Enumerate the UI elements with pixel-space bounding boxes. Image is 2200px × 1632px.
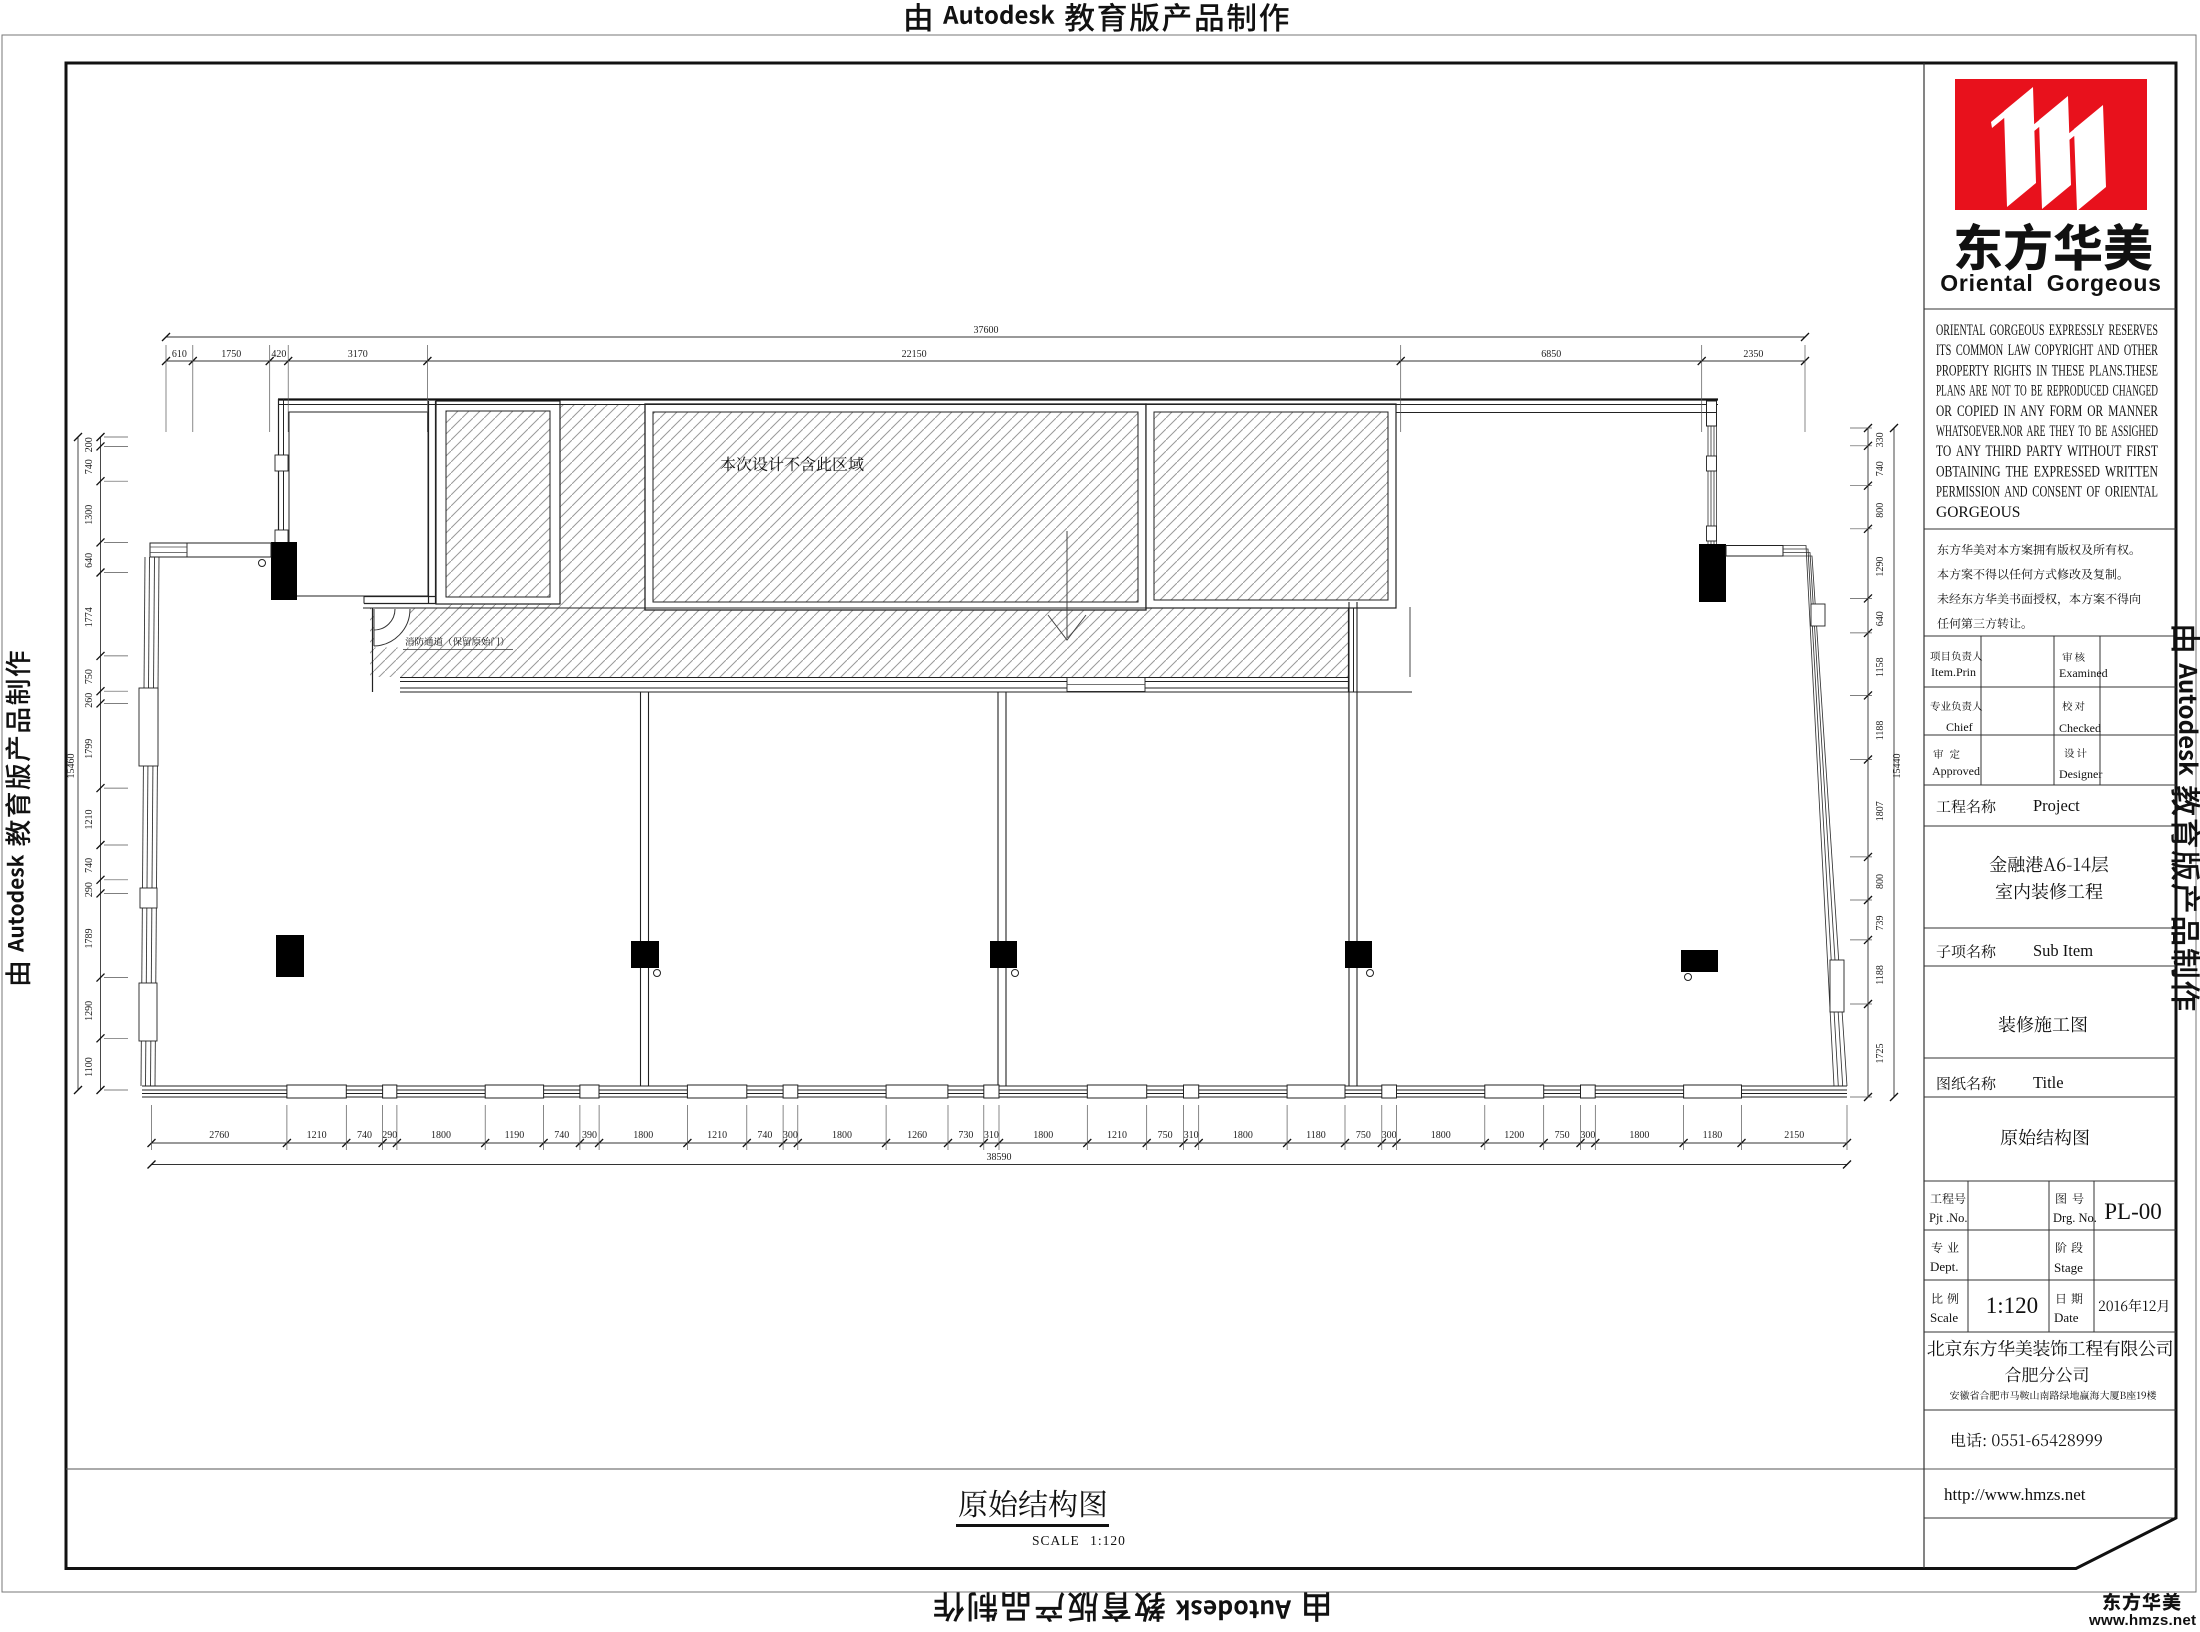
svg-text:Drg. No.: Drg. No. [2053,1211,2097,1225]
svg-text:2150: 2150 [1784,1130,1804,1141]
svg-text:800: 800 [1875,503,1886,518]
svg-text:6850: 6850 [1541,349,1561,360]
svg-text:1210: 1210 [707,1130,727,1141]
svg-text:GORGEOUS: GORGEOUS [1936,504,2020,521]
svg-text:http://www.hmzs.net: http://www.hmzs.net [1944,1485,2086,1504]
svg-text:Examined: Examined [2059,666,2108,680]
svg-text:1800: 1800 [1629,1130,1649,1141]
svg-text:310: 310 [1184,1130,1199,1141]
svg-text:38590: 38590 [987,1152,1012,1163]
svg-text:Pjt .No.: Pjt .No. [1929,1211,1968,1225]
svg-text:260: 260 [84,693,95,708]
svg-text:1800: 1800 [1233,1130,1253,1141]
svg-text:Chief: Chief [1946,720,1973,734]
svg-text:15460: 15460 [66,754,77,779]
svg-text:1200: 1200 [1504,1130,1524,1141]
svg-text:1210: 1210 [307,1130,327,1141]
svg-text:1260: 1260 [907,1130,927,1141]
svg-text:22150: 22150 [902,349,927,360]
svg-text:739: 739 [1875,916,1886,931]
svg-text:Dept.: Dept. [1930,1259,1959,1274]
svg-text:730: 730 [958,1130,973,1141]
svg-text:www.hmzs.net: www.hmzs.net [2088,1612,2196,1629]
svg-text:WHATSOEVER.NOR ARE THEY TO BE: WHATSOEVER.NOR ARE THEY TO BE ASSIGHED [1936,423,2158,440]
svg-text:Item.Prin: Item.Prin [1931,665,1976,679]
svg-text:300: 300 [1382,1130,1397,1141]
svg-text:1750: 1750 [221,349,241,360]
svg-text:1188: 1188 [1875,965,1886,985]
svg-text:1290: 1290 [1875,557,1886,577]
svg-text:OR COPIED IN ANY FORM OR MANNE: OR COPIED IN ANY FORM OR MANNER [1936,403,2158,420]
svg-text:1290: 1290 [84,1001,95,1021]
svg-text:1:120: 1:120 [1986,1293,2038,1318]
svg-text:15440: 15440 [1892,754,1903,779]
svg-text:300: 300 [783,1130,798,1141]
svg-text:1800: 1800 [1431,1130,1451,1141]
svg-text:740: 740 [84,459,95,474]
svg-text:290: 290 [382,1130,397,1141]
svg-text:Sub Item: Sub Item [2033,941,2093,960]
svg-text:290: 290 [84,882,95,897]
svg-text:1799: 1799 [84,739,95,759]
svg-text:1100: 1100 [84,1057,95,1077]
svg-text:2350: 2350 [1743,349,1763,360]
svg-text:PERMISSION AND CONSENT OF ORIE: PERMISSION AND CONSENT OF ORIENTAL [1936,484,2158,501]
svg-text:Oriental Gorgeous: Oriental Gorgeous [1940,270,2162,296]
svg-text:OBTAINING THE EXPRESSED WRITTE: OBTAINING THE EXPRESSED WRITTEN [1936,463,2158,480]
svg-text:Checked: Checked [2059,721,2101,735]
svg-text:PLANS ARE NOT TO BE REPRODUCED: PLANS ARE NOT TO BE REPRODUCED CHANGED [1936,383,2158,400]
svg-text:1300: 1300 [84,505,95,525]
svg-text:1800: 1800 [431,1130,451,1141]
svg-text:200: 200 [84,437,95,452]
svg-text:750: 750 [84,669,95,684]
svg-text:Title: Title [2033,1073,2064,1092]
svg-text:1725: 1725 [1875,1044,1886,1064]
svg-text:1800: 1800 [1033,1130,1053,1141]
svg-text:1774: 1774 [84,607,95,627]
svg-text:1789: 1789 [84,929,95,949]
svg-text:740: 740 [84,858,95,873]
svg-text:740: 740 [357,1130,372,1141]
svg-text:800: 800 [1875,874,1886,889]
svg-text:640: 640 [84,553,95,568]
svg-text:ORIENTAL GORGEOUS EXPRESSLY RE: ORIENTAL GORGEOUS EXPRESSLY RESERVES [1936,322,2158,339]
svg-text:37600: 37600 [974,325,999,336]
svg-text:3170: 3170 [348,349,368,360]
svg-text:610: 610 [172,349,187,360]
svg-text:740: 740 [1875,461,1886,476]
svg-text:Date: Date [2054,1310,2079,1325]
svg-text:PL-00: PL-00 [2104,1199,2162,1224]
svg-text:Approved: Approved [1932,764,1980,778]
svg-text:ITS COMMON LAW COPYRIGHT AND O: ITS COMMON LAW COPYRIGHT AND OTHER [1936,342,2158,359]
svg-text:1800: 1800 [633,1130,653,1141]
svg-text:750: 750 [1158,1130,1173,1141]
svg-text:1807: 1807 [1875,801,1886,821]
svg-text:1158: 1158 [1875,657,1886,677]
svg-text:1210: 1210 [1107,1130,1127,1141]
svg-text:1188: 1188 [1875,721,1886,741]
svg-text:390: 390 [582,1130,597,1141]
svg-text:1180: 1180 [1703,1130,1723,1141]
svg-text:1800: 1800 [832,1130,852,1141]
svg-text:1180: 1180 [1306,1130,1326,1141]
svg-text:1210: 1210 [84,810,95,830]
svg-text:420: 420 [271,349,286,360]
svg-text:Designer: Designer [2059,767,2102,781]
svg-text:310: 310 [984,1130,999,1141]
svg-text:Stage: Stage [2054,1260,2083,1275]
svg-text:SCALE 1:120: SCALE 1:120 [1032,1533,1126,1548]
svg-text:740: 740 [757,1130,772,1141]
svg-text:TO ANY THIRD PARTY WITHOUT FIR: TO ANY THIRD PARTY WITHOUT FIRST [1936,443,2158,460]
svg-text:2760: 2760 [209,1130,229,1141]
svg-text:Scale: Scale [1930,1310,1958,1325]
svg-text:750: 750 [1555,1130,1570,1141]
svg-text:740: 740 [554,1130,569,1141]
svg-text:Project: Project [2033,796,2080,815]
svg-text:PROPERTY RIGHTS IN THESE PLANS: PROPERTY RIGHTS IN THESE PLANS.THESE [1936,362,2158,379]
svg-text:330: 330 [1875,432,1886,447]
svg-text:1190: 1190 [505,1130,525,1141]
svg-text:640: 640 [1875,611,1886,626]
svg-text:300: 300 [1580,1130,1595,1141]
svg-text:750: 750 [1356,1130,1371,1141]
